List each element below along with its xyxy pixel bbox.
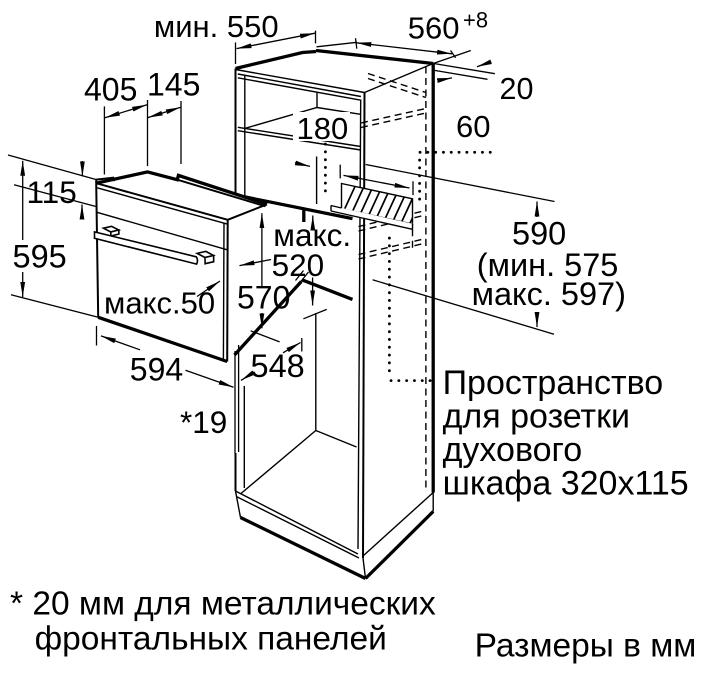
svg-text:145: 145 (147, 67, 200, 103)
svg-text:+8: +8 (463, 8, 488, 33)
svg-text:фронтальных панелей: фронтальных панелей (35, 621, 387, 658)
svg-text:*19: *19 (180, 404, 227, 440)
svg-text:115: 115 (27, 174, 77, 210)
svg-text:макс. 597): макс. 597) (472, 276, 626, 312)
svg-text:для розетки: для розетки (443, 398, 630, 436)
svg-text:595: 595 (13, 239, 67, 275)
svg-text:* 20 мм для металлических: * 20 мм для металлических (10, 586, 436, 623)
svg-text:560: 560 (408, 11, 460, 46)
svg-text:мин. 550: мин. 550 (154, 9, 279, 44)
svg-text:60: 60 (456, 109, 490, 144)
svg-text:570: 570 (237, 280, 290, 316)
svg-text:духового: духового (443, 431, 583, 469)
svg-text:Пространство: Пространство (443, 364, 664, 402)
svg-text:Размеры в мм: Размеры в мм (475, 628, 697, 665)
svg-text:20: 20 (500, 72, 534, 106)
svg-text:180: 180 (297, 111, 349, 146)
svg-text:405: 405 (84, 72, 137, 108)
svg-text:шкафа 320x115: шкафа 320x115 (443, 465, 689, 503)
svg-text:548: 548 (251, 348, 305, 384)
svg-text:макс.50: макс.50 (104, 286, 215, 321)
svg-text:594: 594 (130, 352, 183, 388)
